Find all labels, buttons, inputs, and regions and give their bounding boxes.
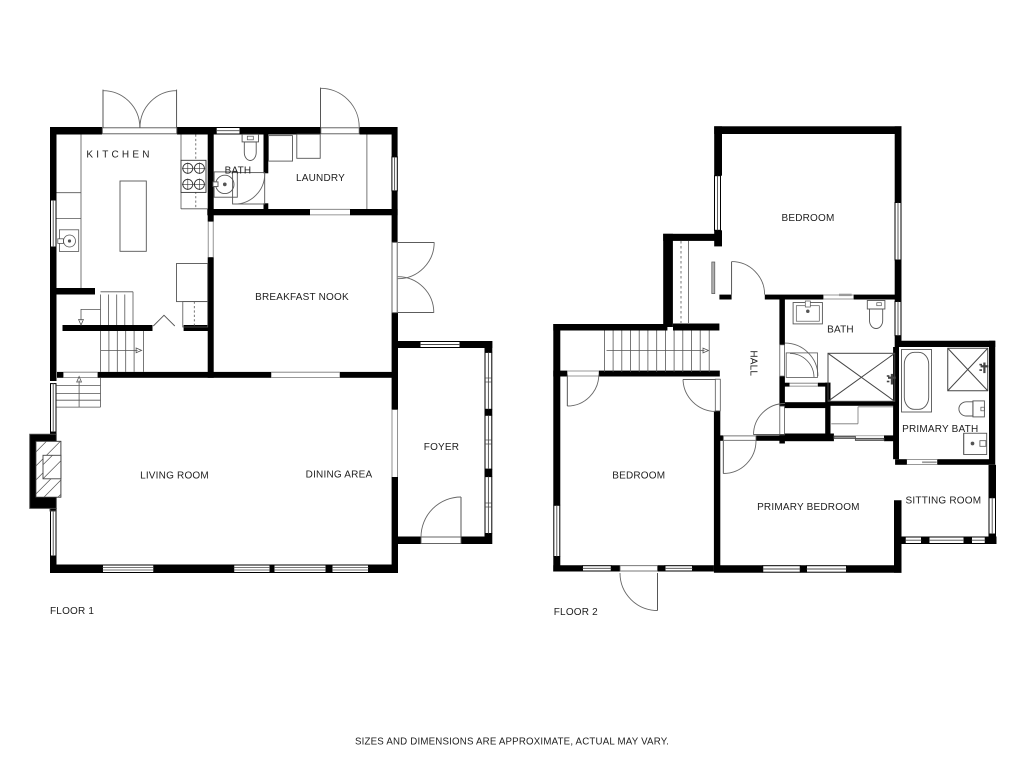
- svg-text:BREAKFAST NOOK: BREAKFAST NOOK: [255, 292, 349, 303]
- svg-text:BATH: BATH: [827, 325, 854, 336]
- svg-text:BEDROOM: BEDROOM: [781, 213, 834, 224]
- svg-text:PRIMARY BATH: PRIMARY BATH: [902, 424, 978, 435]
- svg-text:FLOOR 1: FLOOR 1: [50, 606, 94, 617]
- svg-text:SITTING ROOM: SITTING ROOM: [906, 496, 982, 507]
- svg-text:KITCHEN: KITCHEN: [86, 150, 152, 161]
- svg-text:LIVING ROOM: LIVING ROOM: [140, 471, 209, 482]
- svg-text:BATH: BATH: [225, 166, 252, 177]
- svg-text:LAUNDRY: LAUNDRY: [296, 173, 345, 184]
- svg-text:DINING AREA: DINING AREA: [306, 470, 373, 481]
- svg-text:PRIMARY BEDROOM: PRIMARY BEDROOM: [757, 502, 860, 513]
- svg-text:HALL: HALL: [748, 350, 759, 376]
- svg-text:BEDROOM: BEDROOM: [612, 471, 665, 482]
- svg-text:FOYER: FOYER: [424, 442, 459, 453]
- svg-text:SIZES AND DIMENSIONS ARE APPRO: SIZES AND DIMENSIONS ARE APPROXIMATE, AC…: [355, 737, 669, 748]
- svg-text:FLOOR 2: FLOOR 2: [554, 607, 598, 618]
